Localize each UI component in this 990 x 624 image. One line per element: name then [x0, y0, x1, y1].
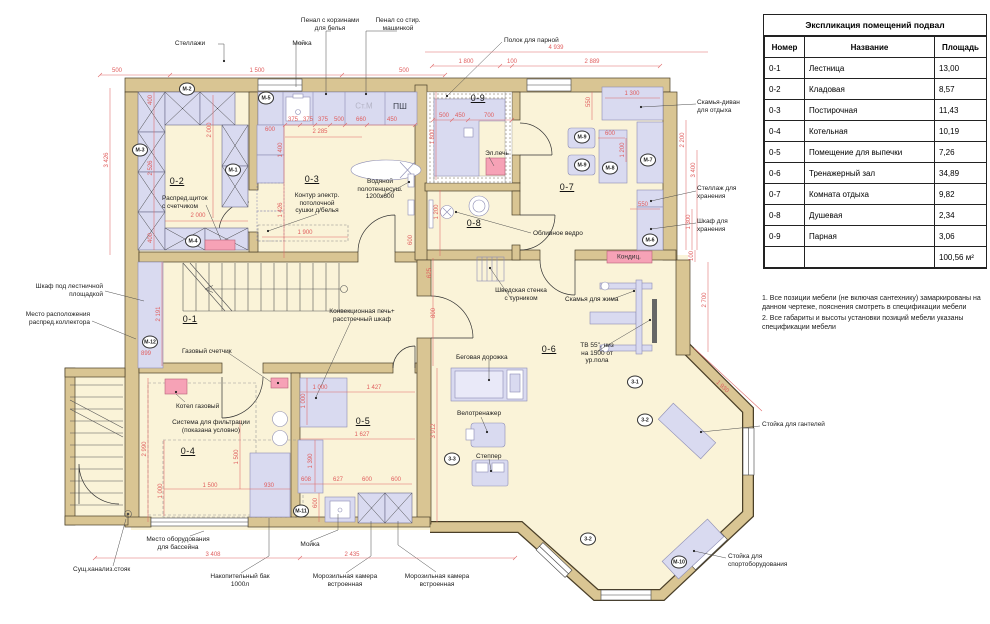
legend-cell: 0-7 — [765, 184, 805, 205]
legend-cell: Лестница — [805, 58, 935, 79]
legend-cell: Постирочная — [805, 100, 935, 121]
legend-cell: 0-1 — [765, 58, 805, 79]
legend-column-header: Площадь — [935, 37, 987, 58]
legend-cell: 0-9 — [765, 226, 805, 247]
legend-total-row: 100,56 м² — [765, 247, 987, 268]
legend-cell: 0-8 — [765, 205, 805, 226]
legend-row: 0-3Постирочная11,43 — [765, 100, 987, 121]
legend-total-cell — [805, 247, 935, 268]
legend-cell: 0-4 — [765, 121, 805, 142]
legend-row: 0-1Лестница13,00 — [765, 58, 987, 79]
legend-row: 0-9Парная3,06 — [765, 226, 987, 247]
legend-cell: Помещение для выпечки — [805, 142, 935, 163]
legend-cell: 2,34 — [935, 205, 987, 226]
legend-cell: 0-3 — [765, 100, 805, 121]
legend-column-header: Номер — [765, 37, 805, 58]
legend-cell: Кладовая — [805, 79, 935, 100]
legend-cell: 0-5 — [765, 142, 805, 163]
legend-cell: 3,06 — [935, 226, 987, 247]
floor-plan-page: СтеллажиПенал с корзинами для бельяПенал… — [0, 0, 990, 624]
legend-row: 0-7Комната отдыха9,82 — [765, 184, 987, 205]
legend-cell: 11,43 — [935, 100, 987, 121]
legend-cell: 34,89 — [935, 163, 987, 184]
legend-row: 0-5Помещение для выпечки7,26 — [765, 142, 987, 163]
legend-cell: 7,26 — [935, 142, 987, 163]
room-explication-table: НомерНазваниеПлощадь 0-1Лестница13,000-2… — [764, 36, 987, 268]
legend-row: 0-8Душевая2,34 — [765, 205, 987, 226]
legend-title: Экспликация помещений подвал — [764, 15, 986, 36]
legend-cell: Душевая — [805, 205, 935, 226]
legend-cell: 0-6 — [765, 163, 805, 184]
legend-cell: 0-2 — [765, 79, 805, 100]
legend-cell: Котельная — [805, 121, 935, 142]
legend-table: Экспликация помещений подвал НомерНазван… — [763, 14, 987, 269]
legend-cell: Парная — [805, 226, 935, 247]
drawing-note: 2. Все габариты и высоты установки позиц… — [762, 314, 990, 332]
drawing-note: 1. Все позиции мебели (не включая сантех… — [762, 294, 990, 312]
legend-cell: Комната отдыха — [805, 184, 935, 205]
legend-row: 0-6Тренажерный зал34,89 — [765, 163, 987, 184]
legend-cell: Тренажерный зал — [805, 163, 935, 184]
legend-row: 0-2Кладовая8,57 — [765, 79, 987, 100]
legend-total-cell: 100,56 м² — [935, 247, 987, 268]
legend-column-header: Название — [805, 37, 935, 58]
drawing-notes: 1. Все позиции мебели (не включая сантех… — [762, 294, 990, 334]
legend-row: 0-4Котельная10,19 — [765, 121, 987, 142]
legend-cell: 8,57 — [935, 79, 987, 100]
legend-total-cell — [765, 247, 805, 268]
legend-cell: 9,82 — [935, 184, 987, 205]
legend-cell: 13,00 — [935, 58, 987, 79]
legend-cell: 10,19 — [935, 121, 987, 142]
